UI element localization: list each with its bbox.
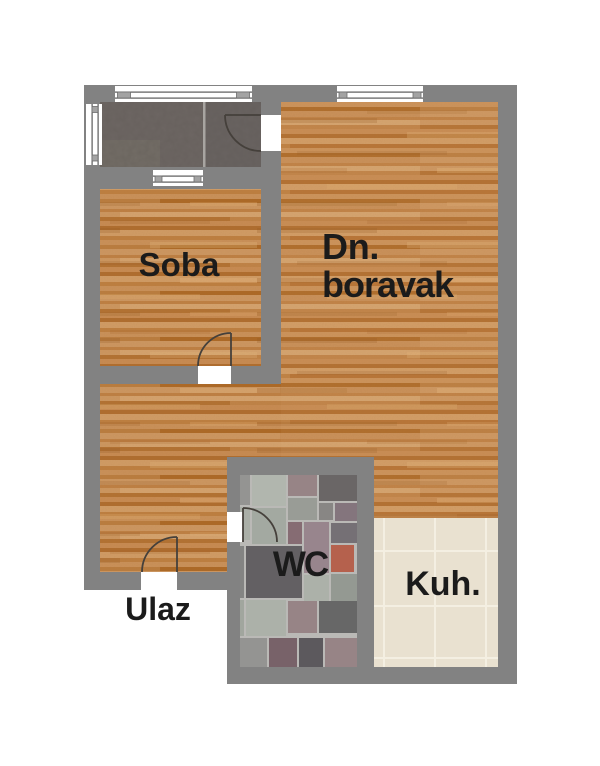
- svg-text:boravak: boravak: [322, 264, 455, 305]
- svg-text:Dn.: Dn.: [322, 226, 379, 267]
- svg-text:Kuh.: Kuh.: [405, 565, 481, 603]
- svg-text:Soba: Soba: [139, 246, 220, 283]
- svg-text:WC: WC: [273, 545, 329, 584]
- svg-text:Ulaz: Ulaz: [125, 591, 191, 627]
